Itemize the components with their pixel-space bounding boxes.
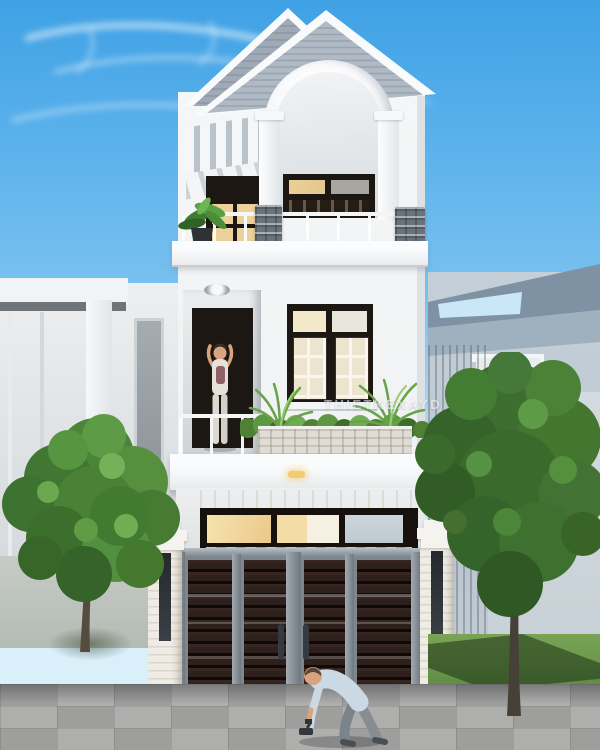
portico-column-left-capital bbox=[255, 111, 284, 120]
right-tree-canopy bbox=[415, 352, 600, 617]
woman-arm-left bbox=[209, 346, 213, 366]
portico-window-pane-cool bbox=[331, 180, 369, 194]
portico-column-right-capital bbox=[374, 111, 403, 120]
middle-window-transom bbox=[293, 311, 367, 332]
gate-post bbox=[232, 554, 241, 702]
object-on-ground bbox=[299, 728, 313, 735]
ground-floor-downlight bbox=[288, 471, 305, 478]
woman-arm-right bbox=[227, 346, 231, 366]
man-torso bbox=[319, 679, 359, 702]
ground-floor-stone-band bbox=[200, 490, 418, 510]
left-tree bbox=[0, 398, 200, 664]
portico-window-lower-panes bbox=[289, 200, 369, 212]
man-leg-front bbox=[344, 704, 353, 740]
man-on-sidewalk bbox=[283, 648, 395, 750]
portico-window-pane-warm bbox=[289, 180, 325, 194]
top-balcony-potted-plant bbox=[172, 194, 240, 248]
second-floor-slab bbox=[172, 241, 428, 267]
glazing-pane-warm-left bbox=[207, 515, 271, 543]
woman-head bbox=[214, 347, 227, 360]
left-tree-canopy bbox=[2, 414, 180, 602]
glazing-pane-cool-right bbox=[345, 515, 403, 543]
balcony-door-transom bbox=[198, 314, 247, 338]
ceiling-light bbox=[204, 284, 230, 296]
architectural-render-scene: THIETKEXAYD bbox=[0, 0, 600, 750]
glazing-pane-warm-mid bbox=[277, 515, 339, 543]
portico-column-right bbox=[378, 118, 399, 220]
watermark-text: THIETKEXAYD bbox=[324, 398, 454, 411]
